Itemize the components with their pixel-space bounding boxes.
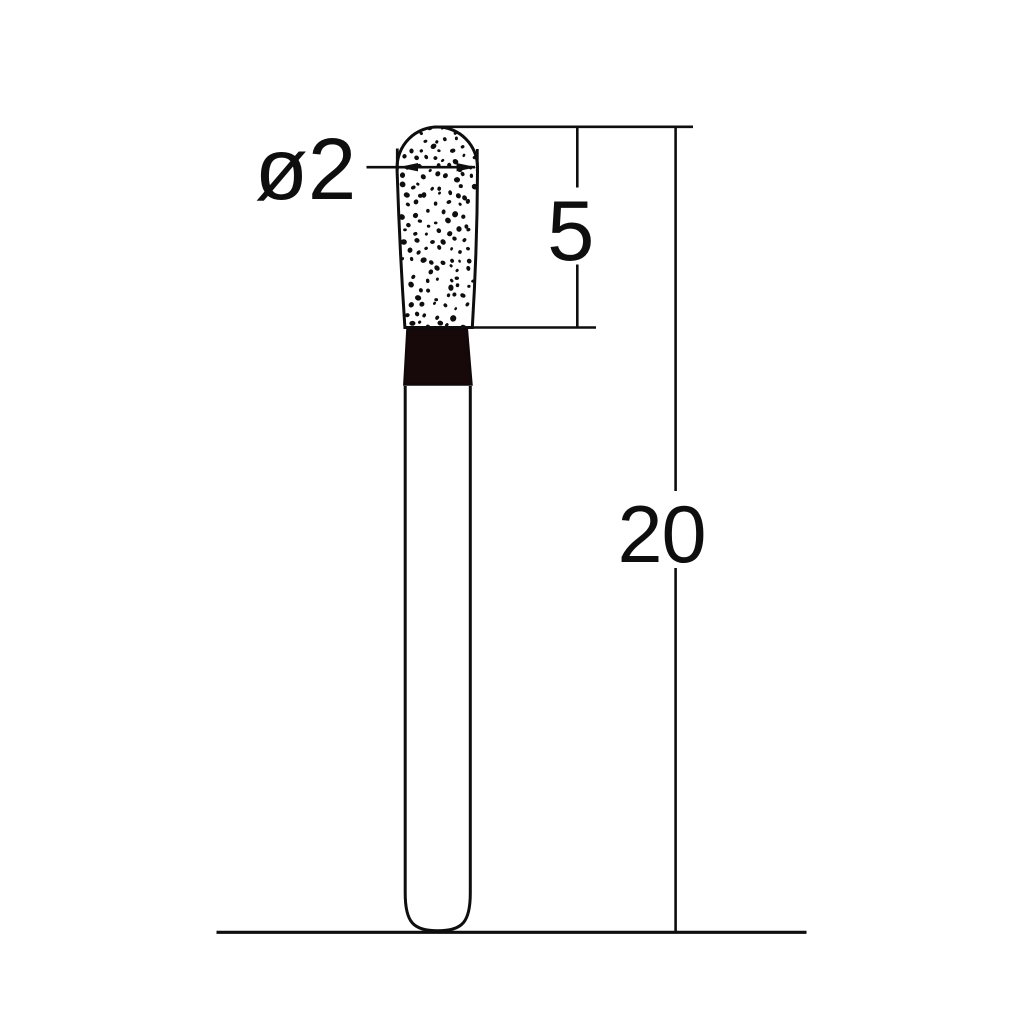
- svg-text:5: 5: [547, 184, 594, 279]
- svg-text:ø2: ø2: [255, 121, 357, 218]
- svg-text:20: 20: [617, 490, 705, 580]
